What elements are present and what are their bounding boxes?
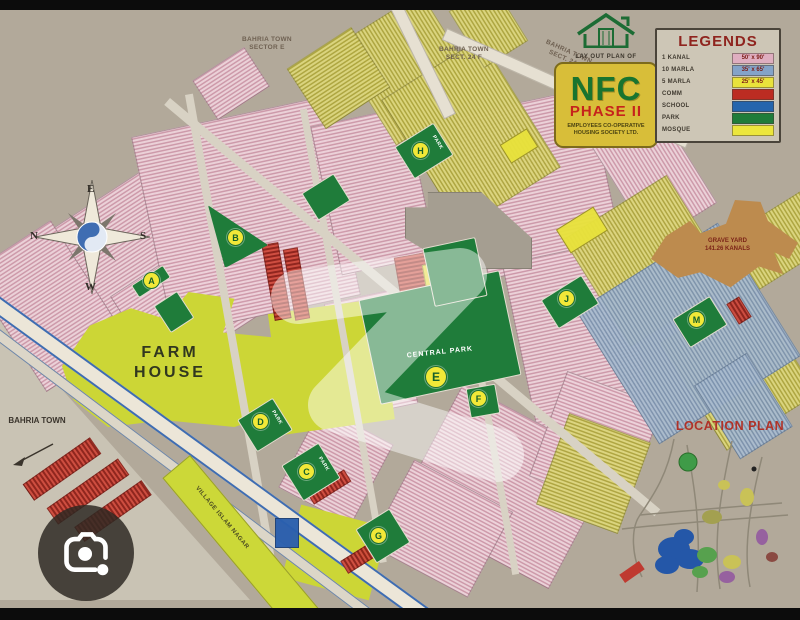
legend-row: 1 KANAL 50' x 90' — [662, 52, 774, 64]
village-road-label: VILLAGE ISLAM NAGAR — [194, 486, 250, 551]
legend-row: 10 MARLA 35' x 65' — [662, 64, 774, 76]
society-subtitle: EMPLOYEES CO-OPERATIVE HOUSING SOCIETY L… — [567, 123, 644, 137]
sect-24f-label: BAHRIA TOWN SECT. 24 F — [426, 46, 502, 62]
park-marker-h: H — [412, 142, 429, 159]
park-marker-m: M — [688, 311, 705, 328]
compass-bottom: W — [85, 281, 96, 293]
camera-lens-icon — [60, 527, 112, 579]
graveyard-label: GRAVE YARD 141.26 KANALS — [685, 238, 770, 253]
park-marker-e: E — [425, 366, 447, 388]
legend-swatch — [732, 89, 774, 100]
legend-row: MOSQUE — [662, 124, 774, 136]
legend-swatch — [732, 101, 774, 112]
legend-row: PARK — [662, 112, 774, 124]
park-marker-c: C — [298, 463, 315, 480]
legend-panel: LEGENDS 1 KANAL 50' x 90' 10 MARLA 35' x… — [655, 28, 781, 143]
legend-title: LEGENDS — [662, 33, 774, 50]
legend-swatch — [732, 113, 774, 124]
sign-caption: LAY OUT PLAN OF — [548, 54, 664, 60]
park-word: PARK — [431, 134, 444, 151]
society-phase: PHASE II — [570, 104, 642, 121]
top-letterbox-bar — [0, 0, 800, 10]
society-name: NFC — [571, 73, 642, 104]
compass-top: E — [87, 183, 94, 195]
farm-house-line2: HOUSE — [95, 363, 245, 383]
title-sign: LAY OUT PLAN OF NFC PHASE II EMPLOYEES C… — [548, 12, 664, 148]
sector-e-label: BAHRIA TOWN SECTOR E — [222, 36, 312, 52]
legend-swatch — [732, 125, 774, 136]
legend-swatch: 50' x 90' — [732, 53, 774, 64]
park-marker-d: D — [252, 413, 269, 430]
compass-left: N — [30, 230, 38, 242]
park-marker-j: J — [558, 290, 575, 307]
legend-row: SCHOOL — [662, 100, 774, 112]
bahria-town-label: BAHRIA TOWN — [6, 416, 68, 426]
map-image-viewer: VILLAGE ISLAM NAGAR PARK PARK PARK CENTR… — [0, 0, 800, 620]
park-word: PARK — [270, 409, 283, 426]
park-marker-b: B — [227, 229, 244, 246]
park-word: PARK — [317, 456, 330, 473]
park-marker-f: F — [470, 390, 487, 407]
legend-row: 5 MARLA 25' x 45' — [662, 76, 774, 88]
sign-board: NFC PHASE II EMPLOYEES CO-OPERATIVE HOUS… — [554, 62, 658, 148]
house-icon — [573, 12, 639, 48]
camera-lens-button[interactable] — [38, 505, 134, 601]
park-marker-g: G — [370, 527, 387, 544]
location-plan-title: LOCATION PLAN — [665, 419, 795, 435]
compass-right: S — [140, 230, 146, 242]
farm-house-label: FARM HOUSE — [95, 343, 245, 383]
farm-house-line1: FARM — [95, 343, 245, 363]
bottom-letterbox-bar — [0, 608, 800, 620]
bahria-town-arrow — [5, 440, 60, 470]
location-plan-map — [612, 437, 792, 595]
compass-rose — [35, 180, 150, 295]
plot-block — [275, 518, 299, 548]
legend-swatch: 35' x 65' — [732, 65, 774, 76]
legend-row: COMM — [662, 88, 774, 100]
legend-swatch: 25' x 45' — [732, 77, 774, 88]
